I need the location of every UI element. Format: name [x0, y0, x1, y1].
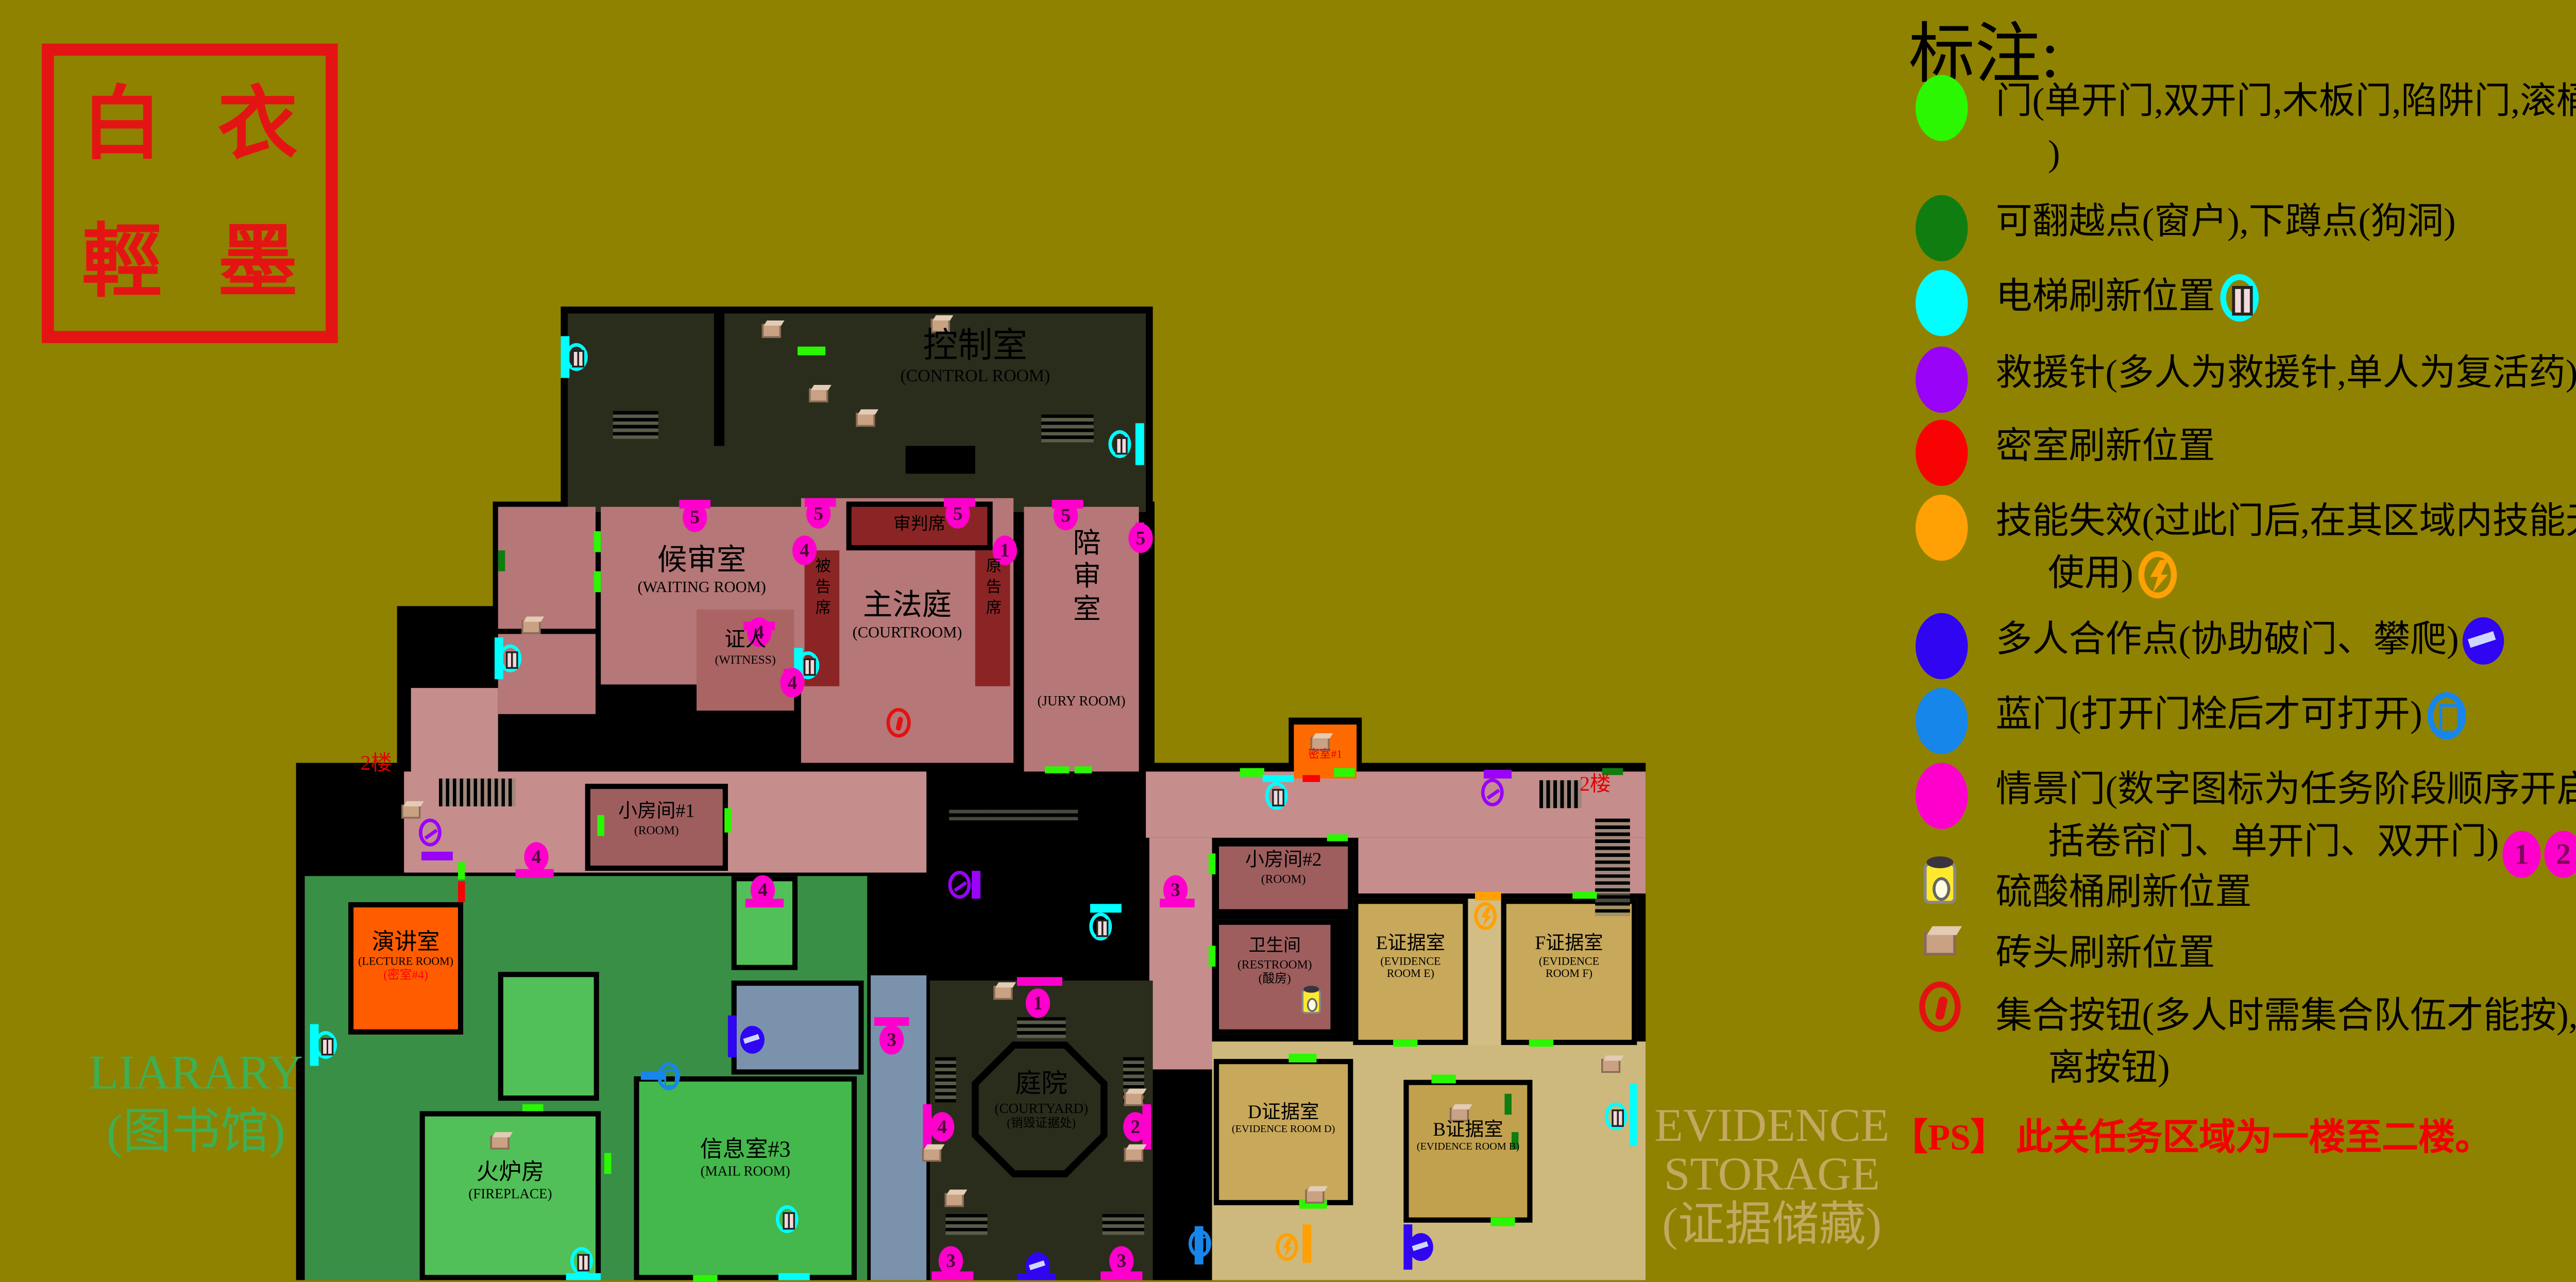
- room-2-label-line: (ROOM): [1214, 872, 1353, 886]
- control-console: [906, 446, 975, 474]
- bluedoor-icon: [1189, 1229, 1211, 1257]
- lightning-icon: [2133, 558, 2185, 593]
- legend-item-4: 密室刷新位置: [1909, 420, 2576, 472]
- door-marker: [728, 1016, 737, 1057]
- legend-text-line: 密室刷新位置: [1996, 420, 2576, 472]
- evidence-room-e-label-line: E证据室: [1353, 934, 1468, 956]
- barrel-icon: [1916, 866, 1968, 901]
- waiting-room-label-line: (WAITING ROOM): [601, 578, 803, 596]
- elevator-icon: [776, 1205, 799, 1233]
- door-marker: [1045, 766, 1069, 773]
- hand-icon: [1916, 989, 1968, 1024]
- legend-dot-icon: [1916, 763, 1975, 832]
- door-marker: [458, 881, 465, 902]
- legend-item-2: 电梯刷新位置: [1909, 270, 2576, 322]
- lecture-room-label-line: 演讲室: [348, 930, 463, 956]
- lecture-room-label-line: (密室#4): [348, 969, 463, 983]
- room-1-label: 小房间#1(ROOM): [585, 801, 728, 837]
- dot: [1916, 195, 1968, 261]
- brick-icon: [945, 1193, 964, 1207]
- door-marker: [458, 862, 465, 880]
- legend-text-line: 技能失效(过此门后,在其区域内技能无法: [1996, 495, 2576, 547]
- legend-item-8: 情景门(数字图标为任务阶段顺序开启,包括卷帘门、单开门、双开门)12: [1909, 763, 2576, 878]
- scenario-door-badge: 3: [879, 1025, 904, 1054]
- evidence-room-f-label-line: F证据室: [1501, 934, 1637, 956]
- legend-text-line: 离按钮): [2048, 1041, 2576, 1093]
- evidence-room-e-label-line: ROOM E): [1353, 969, 1468, 982]
- legend-item-text: 情景门(数字图标为任务阶段顺序开启,包括卷帘门、单开门、双开门)12: [1996, 763, 2576, 878]
- handshake-icon: [2459, 623, 2511, 659]
- brick-icon: [1924, 932, 1956, 956]
- control-room-label: 控制室(CONTROL ROOM): [862, 327, 1088, 387]
- legend-dot-icon: [1916, 270, 1975, 340]
- scenario-door-badge: 3: [1109, 1246, 1133, 1275]
- legend-item-text: 救援针(多人为救援针,单人为复活药): [1996, 347, 2576, 399]
- door-marker: [1327, 834, 1348, 841]
- door-marker: [594, 571, 601, 593]
- legend-item-10: 砖头刷新位置: [1909, 926, 2576, 979]
- corridor-right-arm: [1149, 838, 1212, 1070]
- door-marker: [1240, 768, 1264, 777]
- syringe-icon: [1481, 779, 1504, 806]
- legend-text-line: 门(单开门,双开门,木板门,陷阱门,滚桶门: [1996, 75, 2576, 127]
- bluedoor-icon: [2422, 698, 2475, 733]
- scenario-door-badge: 4: [524, 842, 548, 871]
- elevator-icon: [2215, 280, 2267, 315]
- door-marker: [421, 852, 453, 861]
- legend-dot-icon: [1916, 195, 1975, 265]
- legend-hand-icon: [1916, 989, 1975, 1059]
- artist-seal: 白 衣 輕 墨: [42, 44, 338, 343]
- door-marker: [1490, 1218, 1515, 1226]
- dot: [1916, 420, 1968, 486]
- library-label-en: LIARARY: [52, 1045, 340, 1104]
- door-marker: [798, 347, 825, 356]
- seal-char: 白: [54, 56, 190, 193]
- evidence-storage-line3: (证据储藏): [1646, 1200, 1898, 1249]
- legend-item-11: 集合按钮(多人时需集合队伍才能按),撤离按钮): [1909, 989, 2576, 1094]
- floor2-left-label: 2楼: [342, 752, 411, 777]
- legend-item-text: 多人合作点(协助破门、攀爬): [1996, 613, 2576, 665]
- door-marker: [1334, 768, 1355, 777]
- stairs: [1017, 1017, 1066, 1038]
- scenario-door-badge: 5: [1128, 524, 1153, 553]
- restroom-label-line: (RESTROOM): [1214, 957, 1336, 971]
- scenario-door-badge: 3: [1163, 875, 1188, 905]
- elevator-icon: [1265, 782, 1288, 810]
- legend-text-line: 硫酸桶刷新位置: [1996, 866, 2576, 918]
- evidence-room-f-label: F证据室(EVIDENCEROOM F): [1501, 934, 1637, 982]
- brick-icon: [856, 413, 875, 427]
- lightning-icon: [1276, 1233, 1298, 1261]
- door-marker: [1529, 1040, 1553, 1047]
- evidence-room-e-label: E证据室(EVIDENCEROOM E): [1353, 934, 1468, 982]
- library-label-zh: (图书馆): [52, 1104, 340, 1162]
- jury-room-sub-label: (JURY ROOM): [1021, 693, 1143, 709]
- bluedoor-icon: [2428, 692, 2466, 739]
- scenario-door-badge: 3: [939, 1246, 963, 1275]
- green-room-1: [498, 972, 599, 1101]
- bluedoor-icon: [657, 1062, 680, 1090]
- legend-item-text: 集合按钮(多人时需集合队伍才能按),撤离按钮): [1996, 989, 2576, 1094]
- evidence-room-f-label-line: ROOM F): [1501, 969, 1637, 982]
- brick-icon: [1916, 926, 1968, 961]
- seal-char: 輕: [54, 193, 190, 331]
- jury-room-sub-label-line: (JURY ROOM): [1021, 693, 1143, 709]
- dot: [1916, 75, 1968, 141]
- door-marker: [1302, 775, 1320, 782]
- jury-room-label-line: 陪审室: [1065, 528, 1097, 627]
- ante-room-upper: [498, 507, 596, 629]
- legend-item-5: 技能失效(过此门后,在其区域内技能无法使用): [1909, 495, 2576, 599]
- scenario-door-badge: 4: [751, 875, 775, 905]
- legend-dot-icon: [1916, 495, 1975, 564]
- legend-text-line: 电梯刷新位置: [1996, 270, 2576, 322]
- door-marker: [594, 531, 601, 552]
- legend-item-text: 硫酸桶刷新位置: [1996, 866, 2576, 918]
- door-marker: [1484, 770, 1512, 779]
- stairs: [945, 1214, 987, 1235]
- brick-icon: [809, 389, 828, 402]
- brick-icon: [521, 620, 540, 634]
- evidence-room-b-label-line: (EVIDENCE ROOM B): [1403, 1142, 1532, 1154]
- legend-text-line: 可翻越点(窗户),下蹲点(狗洞): [1996, 195, 2576, 247]
- defendant-seat-label: 被告席: [806, 558, 838, 620]
- seal-char: 衣: [190, 56, 326, 193]
- witness-room-label-line: 证人: [697, 629, 794, 653]
- door-marker: [1289, 1054, 1316, 1062]
- witness-room-label: 证人(WITNESS): [697, 629, 794, 667]
- dot: [1916, 495, 1968, 561]
- barrel-icon: [1302, 989, 1321, 1014]
- waiting-room-label-line: 候审室: [601, 544, 803, 578]
- door-marker: [604, 1153, 612, 1174]
- legend-item-text: 电梯刷新位置: [1996, 270, 2576, 322]
- elevator-icon: [2220, 274, 2259, 322]
- courtyard-label-line: (销毁证据处): [930, 1117, 1153, 1131]
- elevator-icon: [565, 343, 588, 371]
- legend-item-7: 蓝门(打开门栓后才可打开): [1909, 688, 2576, 740]
- evidence-room-e-label-line: (EVIDENCE: [1353, 955, 1468, 968]
- evidence-room-d-label: D证据室(EVIDENCE ROOM D): [1214, 1103, 1353, 1137]
- evidence-storage-area-label: EVIDENCE STORAGE (证据储藏): [1646, 1101, 1898, 1249]
- legend-text-line: 多人合作点(协助破门、攀爬): [1996, 613, 2576, 665]
- handshake-icon: [1409, 1233, 1433, 1261]
- elevator-icon: [1108, 430, 1131, 458]
- legend-text-line: 使用): [2048, 547, 2576, 599]
- restroom-label: 卫生间(RESTROOM)(酸房): [1214, 937, 1336, 985]
- elevator-icon: [499, 645, 521, 672]
- legend-dot-icon: [1916, 420, 1975, 490]
- room-2-label-line: 小房间#2: [1214, 850, 1353, 872]
- door-marker: [1263, 775, 1294, 782]
- lecture-room-label-line: (LECTURE ROOM): [348, 956, 463, 969]
- legend-text-line: 救援针(多人为救援针,单人为复活药): [1996, 347, 2576, 399]
- brick-icon: [401, 805, 420, 819]
- floor2-right-label-line: 2楼: [1561, 773, 1630, 798]
- fireplace-room-label-line: 火炉房: [420, 1160, 601, 1186]
- stairs: [1041, 414, 1093, 442]
- fireplace-room-label: 火炉房(FIREPLACE): [420, 1160, 601, 1202]
- door-marker: [693, 1275, 717, 1282]
- door-marker: [1075, 766, 1092, 773]
- witness-room-label-line: (WITNESS): [697, 653, 794, 667]
- brick-icon: [922, 1148, 941, 1161]
- scenario-door-badge: 5: [806, 499, 831, 528]
- door-marker: [1090, 904, 1122, 913]
- courtyard-label: 庭院(COURTYARD)(销毁证据处): [930, 1071, 1153, 1132]
- hand-icon: [1919, 982, 1960, 1032]
- elevator-icon: [570, 1247, 593, 1275]
- room-2-label: 小房间#2(ROOM): [1214, 850, 1353, 886]
- legend-item-9: 硫酸桶刷新位置: [1909, 866, 2576, 918]
- handshake-icon: [2463, 617, 2504, 665]
- door-marker: [1504, 1094, 1512, 1115]
- legend-item-3: 救援针(多人为救援针,单人为复活药): [1909, 347, 2576, 399]
- legend-dot-icon: [1916, 613, 1975, 683]
- library-area-label: LIARARY (图书馆): [52, 1045, 340, 1162]
- dot: [1916, 613, 1968, 679]
- door-marker: [1136, 423, 1144, 465]
- scenario-door-badge: 1: [1026, 988, 1050, 1018]
- stairs: [1595, 819, 1630, 916]
- corridor-left-vert: [411, 688, 498, 775]
- handshake-icon: [1026, 1252, 1050, 1280]
- legend-barrel-icon: [1916, 866, 1975, 935]
- legend-dot-icon: [1916, 688, 1975, 757]
- stairs: [613, 411, 658, 439]
- stairs: [439, 779, 516, 806]
- legend-dot-icon: [1916, 75, 1975, 144]
- barrel-icon: [1924, 862, 1956, 903]
- control-room-label-line: 控制室: [862, 327, 1088, 367]
- legend-item-text: 砖头刷新位置: [1996, 926, 2576, 979]
- legend-dot-icon: [1916, 347, 1975, 416]
- jury-room-label: 陪审室: [1046, 528, 1116, 627]
- door-marker: [522, 1104, 544, 1111]
- lightning-icon: [1474, 902, 1497, 930]
- door-marker: [778, 1273, 810, 1280]
- legend-item-text: 蓝门(打开门栓后才可打开): [1996, 688, 2576, 740]
- fireplace-room-label-line: (FIREPLACE): [420, 1186, 601, 1202]
- room-1-label-line: 小房间#1: [585, 801, 728, 823]
- courtyard-label-line: (COURTYARD): [930, 1101, 1153, 1117]
- hand-icon: [886, 708, 910, 737]
- scenario-door-badge: 5: [683, 502, 707, 532]
- legend-item-text: 密室刷新位置: [1996, 420, 2576, 472]
- elevator-icon: [1089, 913, 1112, 940]
- stairs: [1103, 1214, 1144, 1235]
- mail-room-label: 信息室#3(MAIL ROOM): [634, 1137, 857, 1179]
- mail-room-label-line: (MAIL ROOM): [634, 1163, 857, 1179]
- legend-text-line: ): [2048, 127, 2576, 179]
- lightning-icon: [2139, 551, 2177, 598]
- judge-bench-label-line: 审判席: [846, 516, 993, 536]
- evidence-room-d-label-line: D证据室: [1214, 1103, 1353, 1125]
- legend-ps-note: 【PS】 此关任务区域为一楼至二楼。: [1891, 1109, 2492, 1161]
- legend-item-0: 门(单开门,双开门,木板门,陷阱门,滚桶门): [1909, 75, 2576, 179]
- elevator-icon: [1605, 1103, 1628, 1131]
- legend-text-line: 蓝门(打开门栓后才可打开): [1996, 688, 2576, 740]
- lecture-room-label: 演讲室(LECTURE ROOM)(密室#4): [348, 930, 463, 983]
- dot: [1916, 347, 1968, 413]
- secret-room-1-label: 密室#1: [1294, 749, 1357, 762]
- brick-icon: [1601, 1059, 1620, 1073]
- handshake-icon: [740, 1026, 765, 1054]
- brick-icon: [993, 986, 1012, 1000]
- control-inner-wall: [714, 313, 724, 446]
- door-marker: [1475, 892, 1501, 901]
- legend-text-line: 集合按钮(多人时需集合队伍才能按),撤: [1996, 989, 2576, 1041]
- waiting-room-label: 候审室(WAITING ROOM): [601, 544, 803, 596]
- evidence-room-f-label-line: (EVIDENCE: [1501, 955, 1637, 968]
- judge-bench-label: 审判席: [846, 516, 993, 536]
- room-1-label-line: (ROOM): [585, 823, 728, 837]
- legend-item-1: 可翻越点(窗户),下蹲点(狗洞): [1909, 195, 2576, 247]
- door-marker: [1017, 977, 1062, 986]
- restroom-label-line: (酸房): [1214, 971, 1336, 985]
- legend-item-text: 技能失效(过此门后,在其区域内技能无法使用): [1996, 495, 2576, 599]
- door-marker: [1431, 1075, 1455, 1084]
- stage: 555554144443314233控制室(CONTROL ROOM)候审室(W…: [0, 0, 2576, 1280]
- courtyard-label-line: 庭院: [930, 1071, 1153, 1101]
- legend-item-text: 门(单开门,双开门,木板门,陷阱门,滚桶门): [1996, 75, 2576, 179]
- dot: [1916, 688, 1968, 754]
- door-marker: [972, 871, 980, 899]
- brick-icon: [1305, 1190, 1324, 1204]
- seal-char: 墨: [190, 193, 326, 331]
- plaintiff-seat-label-line: 原告席: [984, 558, 1002, 620]
- courtroom-label-line: (COURTROOM): [805, 623, 1010, 641]
- evidence-room-d-label-line: (EVIDENCE ROOM D): [1214, 1124, 1353, 1136]
- restroom-label-line: 卫生间: [1214, 937, 1336, 957]
- evidence-room-b-label: B证据室(EVIDENCE ROOM B): [1403, 1120, 1532, 1154]
- stairs: [949, 806, 1078, 822]
- dot: [1916, 270, 1968, 336]
- legend-text-line: 情景门(数字图标为任务阶段顺序开启,包: [1996, 763, 2576, 815]
- door-marker: [498, 550, 505, 571]
- legend-item-text: 可翻越点(窗户),下蹲点(狗洞): [1996, 195, 2576, 247]
- floor2-left-label-line: 2楼: [342, 752, 411, 777]
- evidence-room-b-label-line: B证据室: [1403, 1120, 1532, 1142]
- secret-room-1-label-line: 密室#1: [1294, 749, 1357, 762]
- door-marker: [1302, 1224, 1311, 1262]
- door-marker: [1393, 1040, 1417, 1047]
- syringe-icon: [419, 819, 442, 847]
- door-marker: [1572, 892, 1597, 899]
- control-room-label-line: (CONTROL ROOM): [862, 367, 1088, 387]
- brick-icon: [1124, 1148, 1143, 1161]
- legend-text-line: 砖头刷新位置: [1996, 926, 2576, 979]
- mail-room-label-line: 信息室#3: [634, 1137, 857, 1163]
- evidence-storage-line1: EVIDENCE: [1646, 1101, 1898, 1150]
- brick-icon: [490, 1136, 509, 1150]
- legend-item-6: 多人合作点(协助破门、攀爬): [1909, 613, 2576, 665]
- defendant-seat-label-line: 被告席: [813, 558, 831, 620]
- evidence-storage-line2: STORAGE: [1646, 1150, 1898, 1200]
- scenario-door-badge: 5: [1054, 501, 1078, 530]
- dot: [1916, 763, 1968, 829]
- scenario-door-badge: 4: [780, 668, 804, 697]
- syringe-icon: [948, 871, 971, 899]
- brick-icon: [762, 324, 781, 338]
- floor2-right-label: 2楼: [1561, 773, 1630, 798]
- door-marker: [1630, 1083, 1637, 1146]
- plaintiff-seat-label: 原告席: [977, 558, 1008, 620]
